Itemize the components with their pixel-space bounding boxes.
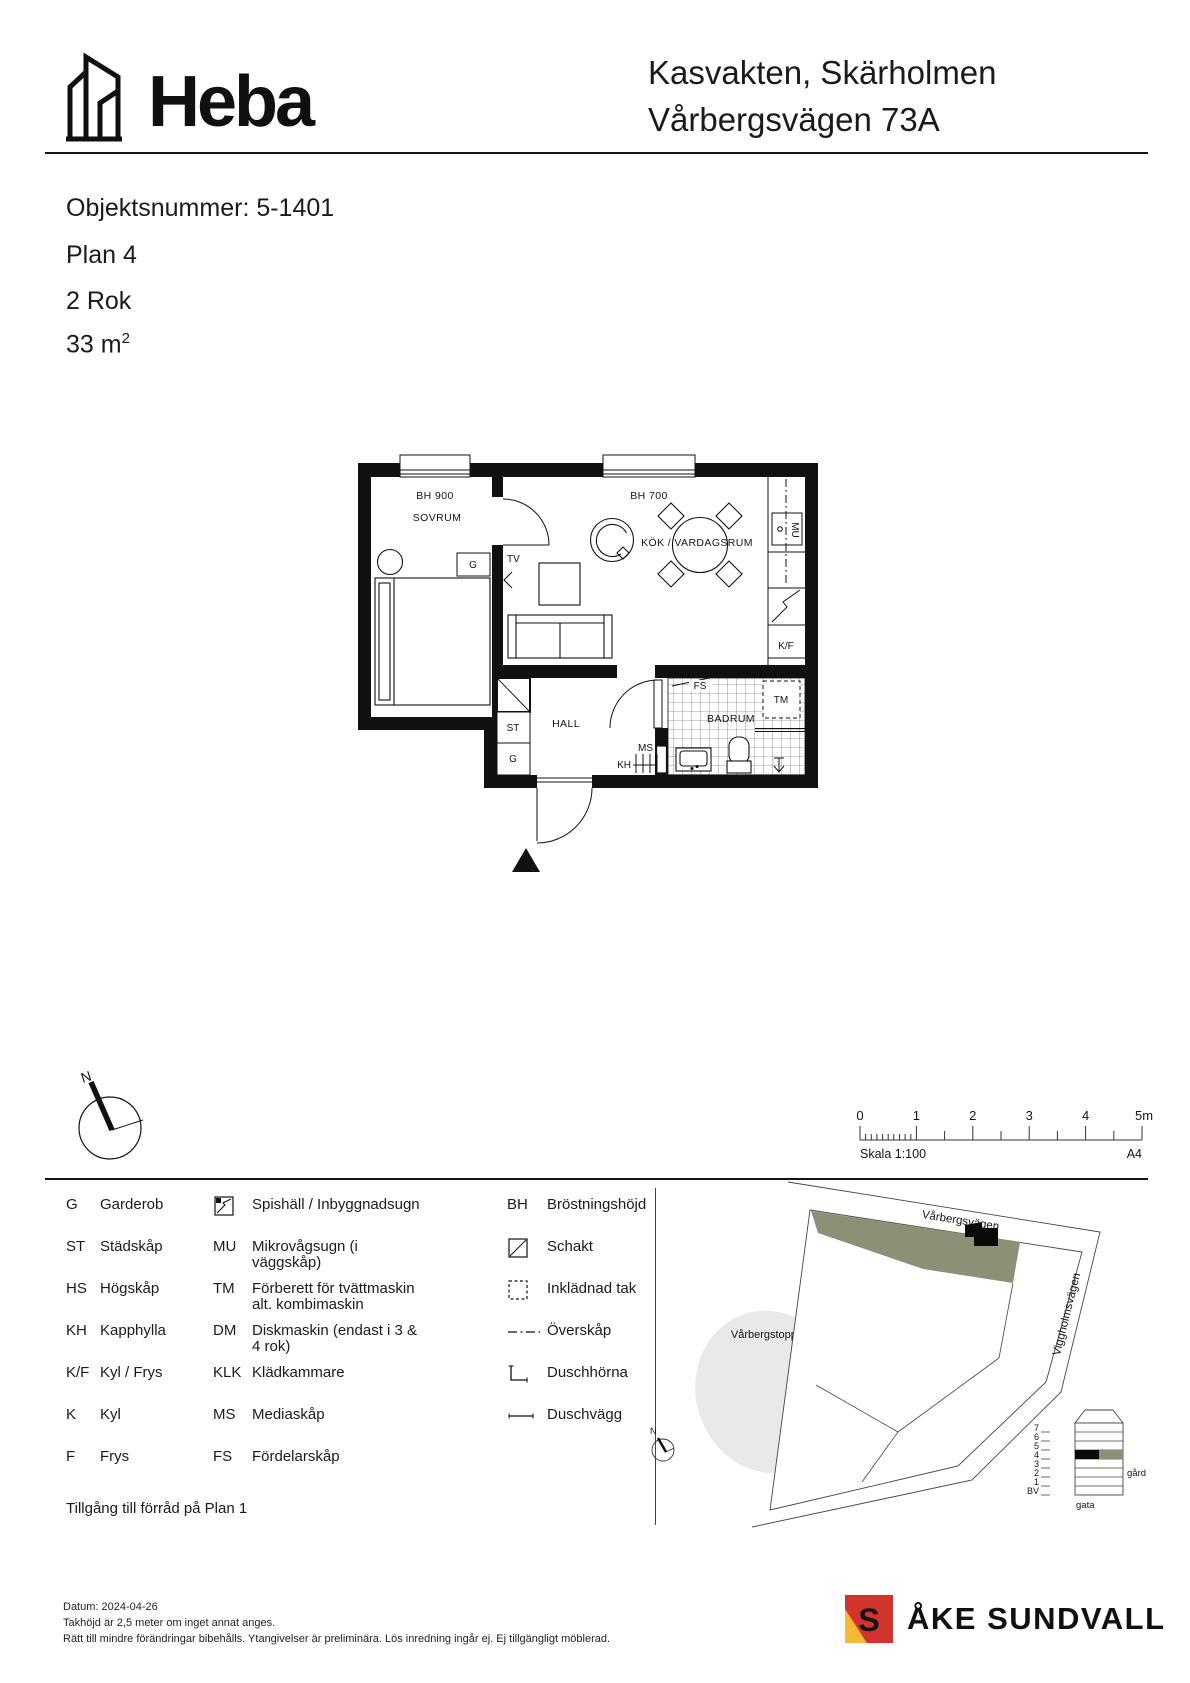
- legend-abbr: K: [66, 1407, 100, 1423]
- legend-term: Klädkammare: [252, 1365, 345, 1381]
- kitchen-living-label: KÖK / VARDAGSRUM: [641, 537, 753, 549]
- bh900-label: BH 900: [416, 490, 453, 502]
- kitchen-counter: [768, 477, 805, 665]
- toilet: [727, 737, 751, 773]
- fridge-freezer-label: K/F: [778, 641, 794, 652]
- legend-abbr: KH: [66, 1323, 100, 1339]
- legend-term: Spishäll / Inbyggnadsugn: [252, 1197, 420, 1213]
- scale-tick-5: 5m: [1135, 1108, 1153, 1123]
- wardrobe-label: G: [469, 560, 477, 571]
- legend-term: Kyl: [100, 1407, 121, 1423]
- window-bh700: [603, 455, 695, 477]
- legend-column-2: Spishäll / Inbyggnadsugn MUMikrovågsugn …: [213, 1197, 425, 1491]
- bathroom-door: [610, 680, 662, 728]
- footer-ceiling-note: Takhöjd är 2,5 meter om inget annat ange…: [63, 1618, 275, 1629]
- stove-oven-icon: [213, 1195, 237, 1217]
- window-bh900: [400, 455, 470, 477]
- legend-term: Inklädnad tak: [547, 1281, 636, 1297]
- site-map: Vårbergstoppen Vårbergsvägen Viggholmsvä…: [630, 1180, 1170, 1530]
- object-number: Objektsnummer: 5-1401: [66, 196, 334, 221]
- legend-abbr: KLK: [213, 1365, 252, 1381]
- legend-row: STStädskåp: [66, 1239, 216, 1281]
- legend-row: KLKKlädkammare: [213, 1365, 425, 1407]
- scale-tick-3: 3: [1026, 1108, 1033, 1123]
- microwave-label: MU: [789, 522, 800, 538]
- overskap-icon: [507, 1321, 541, 1343]
- legend-row: K/FKyl / Frys: [66, 1365, 216, 1407]
- floorplan-drawing: BH 900 BH 700 SOVRUM KÖK / VARDAGSRUM HA…: [340, 450, 830, 895]
- section-floor4-green: [1099, 1450, 1123, 1459]
- legend-term: Fördelarskåp: [252, 1449, 340, 1465]
- scale-tick-4: 4: [1082, 1108, 1089, 1123]
- footer-date: Datum: 2024-04-26: [63, 1602, 158, 1613]
- duschhorna-icon: [507, 1363, 531, 1385]
- legend-row: GGarderob: [66, 1197, 216, 1239]
- entry-door: [537, 774, 592, 843]
- logo-wordmark: Heba: [148, 66, 312, 138]
- washer-label: TM: [774, 695, 788, 706]
- legend-term: Schakt: [547, 1239, 593, 1255]
- footer-disclaimer: Rätt till mindre förändringar bibehålls.…: [63, 1634, 610, 1645]
- coat-shelf-label: KH: [617, 760, 631, 771]
- bed: [375, 578, 490, 705]
- legend-row: DMDiskmaskin (endast i 3 & 4 rok): [213, 1323, 425, 1365]
- legend-term: Duschvägg: [547, 1407, 622, 1423]
- floorplan-document: Heba Kasvakten, Skärholmen Vårbergsvägen…: [0, 0, 1190, 1683]
- legend-abbr: HS: [66, 1281, 100, 1297]
- legend-term: Duschhörna: [547, 1365, 628, 1381]
- legend-abbr: FS: [213, 1449, 252, 1465]
- side-table: [539, 563, 580, 605]
- sitemap-north-label: N: [650, 1426, 657, 1436]
- doc-title-line2: Vårbergsvägen 73A: [648, 103, 940, 136]
- ake-sundvall-logo-icon: S: [845, 1595, 893, 1643]
- legend-term: Kyl / Frys: [100, 1365, 163, 1381]
- legend-row: MUMikrovågsugn (i väggskåp): [213, 1239, 425, 1281]
- apartment-area: 33 m2: [66, 331, 130, 357]
- tv-label: TV: [507, 554, 520, 565]
- scale-bar: 0 1 2 3 4 5m Skala 1:100 A4: [848, 1100, 1158, 1164]
- legend-row: FSFördelarskåp: [213, 1449, 425, 1491]
- armchair: [591, 519, 634, 562]
- stove-symbol: [772, 590, 800, 622]
- inkladnad-tak-icon: [507, 1279, 531, 1301]
- legend-row: Spishäll / Inbyggnadsugn: [213, 1197, 425, 1239]
- legend-term: Städskåp: [100, 1239, 163, 1255]
- area-value: 33 m: [66, 330, 122, 358]
- header-divider: [45, 152, 1148, 154]
- schakt-box: [497, 678, 530, 712]
- section-yard-label: gård: [1127, 1468, 1146, 1479]
- schakt-icon: [507, 1237, 531, 1259]
- media-cabinet-label: MS: [638, 743, 653, 754]
- legend-abbr: ST: [66, 1239, 100, 1255]
- doc-title-line1: Kasvakten, Skärholmen: [648, 56, 997, 89]
- legend-term: Garderob: [100, 1197, 163, 1213]
- area-exponent: 2: [122, 330, 130, 347]
- section-floor4-black: [1075, 1450, 1099, 1459]
- legend-row: HSHögskåp: [66, 1281, 216, 1323]
- compass-rose: N: [55, 1060, 165, 1170]
- legend-term: Kapphylla: [100, 1323, 166, 1339]
- legend-abbr: MS: [213, 1407, 252, 1423]
- dist-cabinet-label: FS: [694, 681, 707, 692]
- scale-tick-2: 2: [969, 1108, 976, 1123]
- stool: [378, 550, 403, 575]
- legend-row: KHKapphylla: [66, 1323, 216, 1365]
- legend-abbr: DM: [213, 1323, 252, 1339]
- compass-north-label: N: [79, 1067, 94, 1085]
- coat-shelf-symbol: [633, 754, 657, 773]
- legend-abbr: BH: [507, 1197, 547, 1213]
- legend-column-1: GGarderob STStädskåp HSHögskåp KHKapphyl…: [66, 1197, 216, 1491]
- scale-text: Skala 1:100: [860, 1147, 926, 1161]
- hall-wardrobe-label: G: [509, 754, 517, 765]
- legend-abbr: MU: [213, 1239, 252, 1255]
- floor-info: Plan 4: [66, 243, 137, 268]
- legend-term: Mediaskåp: [252, 1407, 325, 1423]
- legend-abbr: TM: [213, 1281, 252, 1297]
- legend-row: FFrys: [66, 1449, 216, 1491]
- heba-logo-icon: [58, 46, 132, 142]
- bedroom-door: [503, 499, 549, 545]
- north-needle: [91, 1082, 112, 1130]
- legend-row: TMFörberett för tvättmaskin alt. kombima…: [213, 1281, 425, 1323]
- entrance-arrow: [512, 848, 540, 872]
- hall-label: HALL: [552, 718, 580, 730]
- duschvagg-icon: [507, 1405, 535, 1427]
- section-floor-bv: BV: [1027, 1486, 1039, 1496]
- sitemap-compass: N: [650, 1426, 674, 1461]
- sofa: [508, 615, 612, 658]
- legend-term: Frys: [100, 1449, 129, 1465]
- legend-abbr: K/F: [66, 1365, 100, 1381]
- cleaning-cabinet-label: ST: [507, 723, 520, 734]
- scale-tick-0: 0: [856, 1108, 863, 1123]
- building-section: 7 6 5 4 3 2 1 BV gård gata: [1027, 1410, 1146, 1511]
- brand-name: ÅKE SUNDVALL: [907, 1595, 1166, 1643]
- legend-term: Högskåp: [100, 1281, 159, 1297]
- bh700-label: BH 700: [630, 490, 667, 502]
- section-street-label: gata: [1076, 1500, 1095, 1511]
- legend-term: Förberett för tvättmaskin alt. kombimask…: [252, 1281, 417, 1313]
- bathroom-label: BADRUM: [707, 713, 755, 725]
- storage-note: Tillgång till förråd på Plan 1: [66, 1500, 247, 1517]
- bedroom-label: SOVRUM: [413, 512, 462, 524]
- legend-row: MSMediaskåp: [213, 1407, 425, 1449]
- brand-s-letter: S: [858, 1602, 879, 1638]
- bathroom-sink: [676, 748, 711, 771]
- legend-term: Mikrovågsugn (i väggskåp): [252, 1239, 425, 1271]
- legend-row: KKyl: [66, 1407, 216, 1449]
- legend-term: Överskåp: [547, 1323, 611, 1339]
- media-cabinet-box: [657, 746, 667, 773]
- legend-term: Diskmaskin (endast i 3 & 4 rok): [252, 1323, 425, 1355]
- scale-tick-1: 1: [913, 1108, 920, 1123]
- paper-size-label: A4: [1127, 1147, 1142, 1161]
- legend-abbr: G: [66, 1197, 100, 1213]
- legend-abbr: F: [66, 1449, 100, 1465]
- tv-bracket: [504, 572, 512, 588]
- room-count: 2 Rok: [66, 289, 131, 314]
